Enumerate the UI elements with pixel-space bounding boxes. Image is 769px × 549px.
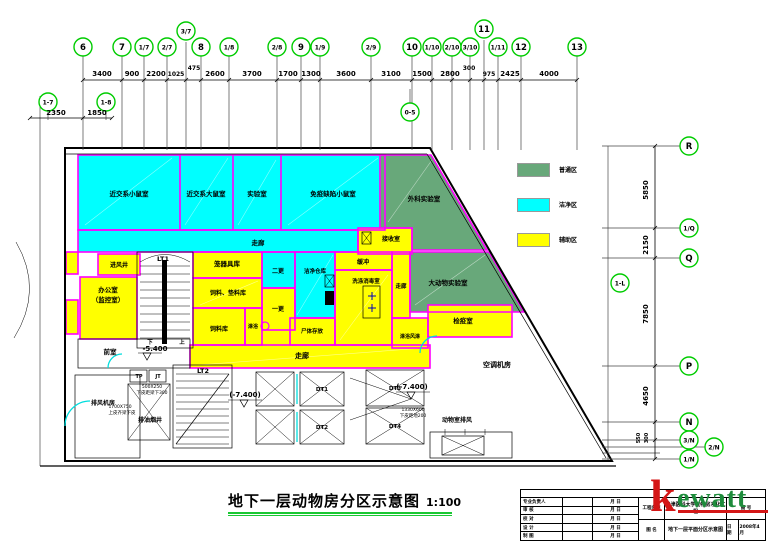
- logo-letters-ewatt: ewatt: [677, 485, 747, 513]
- logo-red-bar: [678, 510, 768, 513]
- drawing-title-text: 地下一层动物房分区示意图: [228, 492, 420, 510]
- row-label: 审 核: [521, 507, 563, 515]
- room-label-lt2: LT2: [197, 367, 209, 375]
- room-label-clean-store: 洁净仓库: [304, 267, 327, 275]
- elevator-label-dt4: DT4: [389, 424, 401, 430]
- dim-label: 1700: [278, 70, 298, 78]
- title-block-row: 校 对月 日: [521, 515, 638, 524]
- room-label-ac-room: 空调机房: [483, 360, 511, 369]
- dim-label: 1850: [87, 109, 107, 117]
- legend-label: 普通区: [559, 165, 577, 174]
- annotation: 下皮距梁下300: [136, 389, 167, 396]
- dim-label: 3600: [336, 70, 356, 78]
- shaft-label-tp: TP: [135, 374, 142, 380]
- kewatt-logo: k ewatt: [650, 477, 769, 523]
- grid-bubble: 1-8: [101, 100, 112, 107]
- row-date-cell: 月 日: [593, 499, 638, 505]
- grid-bubbles-right: R 1/Q Q P N 3/N 2/N 1/N 1-L 5850 2150 78…: [602, 137, 723, 468]
- grid-bubble: 10: [406, 43, 418, 53]
- row-date-cell: 月 日: [593, 525, 638, 531]
- room-label-immuno: 免疫缺陷小鼠室: [310, 189, 356, 198]
- stair-lt1: [137, 252, 193, 348]
- grid-bubble: 2/N: [708, 445, 719, 452]
- title-block-row: 设 计月 日: [521, 524, 638, 533]
- room-label-animal-exhaust: 动物室排风: [442, 416, 472, 424]
- grid-bubble: R: [686, 142, 693, 152]
- row-name-cell: [563, 524, 593, 532]
- room-label-air-inlet: 进风井: [110, 261, 128, 269]
- grid-bubble: N: [685, 418, 692, 428]
- row-date-cell: 月 日: [593, 507, 638, 513]
- grid-bubble: 11: [478, 25, 490, 35]
- grid-bubble: 1/7: [139, 45, 150, 52]
- grid-bubble: 2/7: [162, 45, 173, 52]
- room-label-rat-inbred: 近交系大鼠室: [187, 189, 227, 198]
- room-label-corridor: 走廊: [394, 282, 407, 290]
- grid-bubble: 0-5: [405, 110, 416, 117]
- dim-label: 1300: [301, 70, 321, 78]
- grid-bubble: 1/N: [683, 457, 694, 464]
- grid-bubble: P: [686, 362, 692, 372]
- dim-label: 2800: [440, 70, 460, 78]
- legend-item: 洁净区: [517, 198, 577, 211]
- elevator-label-dt2: DT2: [316, 425, 328, 431]
- grid-bubbles-top: 6 7 1/7 2/7 3/7 8 1/8 2/8 9 1/9 2/9 10 1…: [74, 20, 586, 150]
- room-label-office2: （监控室）: [92, 295, 125, 304]
- room-label-ante: 前室: [104, 347, 118, 356]
- row-name-cell: [563, 507, 593, 515]
- room-label-bedding-store: 饲料、垫料库: [209, 289, 246, 297]
- room-label-shower-air: 淋浴风淋: [400, 333, 420, 340]
- annotation: 1700X750: [108, 404, 131, 410]
- grid-bubble: 12: [515, 43, 527, 53]
- legend-label: 洁净区: [559, 200, 577, 209]
- floor-plan: 6 7 1/7 2/7 3/7 8 1/8 2/8 9 1/9 2/9 10 1…: [0, 0, 769, 549]
- cad-drawing-canvas: 6 7 1/7 2/7 3/7 8 1/8 2/8 9 1/9 2/9 10 1…: [0, 0, 769, 549]
- dim-label: 300: [644, 432, 650, 443]
- annotation: 1330X600: [401, 407, 424, 413]
- dim-label: 2350: [46, 109, 66, 117]
- stair-lt2: [173, 365, 232, 448]
- dim-label: 2600: [205, 70, 225, 78]
- stair-up-label: 上: [179, 338, 185, 346]
- stair-down-label: 下: [147, 339, 153, 346]
- room-label-lt1: LT1: [157, 255, 169, 263]
- grid-bubble: 13: [571, 43, 583, 53]
- grid-bubble: 7: [119, 43, 125, 53]
- dim-label: 2150: [642, 235, 650, 255]
- date-label: 日 期: [727, 524, 738, 536]
- title-block-row: 审 核月 日: [521, 507, 638, 516]
- elevator-bank: [256, 370, 424, 444]
- dim-label: 300: [463, 65, 476, 72]
- row-date-cell: 月 日: [593, 533, 638, 539]
- dim-label: 475: [188, 65, 201, 72]
- dim-label: 2200: [146, 70, 166, 78]
- room-label-wash: 洗涤消毒室: [352, 277, 380, 285]
- row-name-cell: [563, 498, 593, 506]
- dim-label: 2425: [500, 70, 520, 78]
- elevator-label-dt1: DT1: [316, 387, 328, 393]
- dim-label: 4000: [539, 70, 559, 78]
- room-label-corpse: 尸体存放: [301, 327, 324, 335]
- dim-label: 3400: [92, 70, 112, 78]
- row-name-cell: [563, 532, 593, 540]
- legend-swatch-aux-zone: [517, 233, 550, 247]
- legend-swatch-normal-zone: [517, 163, 550, 177]
- grid-bubble: 9: [298, 43, 304, 53]
- grid-bubble: 2/9: [366, 45, 377, 52]
- room-label-cage-store: 笼器具库: [213, 259, 241, 268]
- grid-bubble: 8: [198, 43, 204, 53]
- tiny-annotations: 500X250 下皮距梁下300 1700X750 上皮齐梁下皮 1330X60…: [108, 384, 426, 419]
- grid-bubble: 2/10: [445, 45, 460, 52]
- grid-bubble: 1/Q: [683, 226, 694, 233]
- legend: 普通区 洁净区 辅助区: [517, 163, 577, 268]
- dimension-line-top: 3400 900 2200 1025 475 2600 3700 1700 13…: [81, 65, 579, 82]
- dim-label: 1025: [168, 71, 185, 78]
- elevation-label: (-7.400): [229, 391, 260, 399]
- grid-bubble: 1/11: [491, 45, 506, 52]
- room-label-change1: 一更: [272, 305, 285, 313]
- annotation: 500X250: [142, 384, 162, 390]
- grid-bubble: 3/10: [463, 45, 478, 52]
- drawing-title: 地下一层动物房分区示意图1:100: [228, 490, 461, 516]
- legend-swatch-clean-zone: [517, 198, 550, 212]
- title-block-row: 专业负责人月 日: [521, 498, 638, 507]
- dim-label: 7850: [642, 304, 650, 324]
- dim-label: 975: [483, 71, 496, 78]
- dim-label: 1500: [412, 70, 432, 78]
- room-label-corridor: 走廊: [295, 351, 309, 360]
- annotation: 下皮距地200: [400, 412, 427, 419]
- room-label-quarantine: 检疫室: [453, 316, 473, 325]
- elevator-label-dt3: DT3: [389, 386, 401, 392]
- title-block-row: 制 图月 日: [521, 532, 638, 540]
- room-label-office: 办公室: [98, 285, 118, 294]
- room-label-big-animal: 大动物实验室: [429, 278, 469, 287]
- grid-bubble: 3/N: [683, 438, 694, 445]
- room-label-surgery: 外科实验室: [408, 194, 441, 203]
- grid-bubble: 1/8: [224, 45, 235, 52]
- drawing-scale: 1:100: [426, 496, 461, 509]
- room-label-buffer: 缓冲: [357, 258, 369, 266]
- legend-label: 辅助区: [559, 235, 577, 244]
- dim-label: 3700: [242, 70, 262, 78]
- elevation-label: -5.400: [142, 345, 167, 353]
- dim-label: 900: [125, 70, 140, 78]
- title-underline: [228, 512, 452, 516]
- dim-label: 3100: [381, 70, 401, 78]
- room-label-corridor: 走廊: [251, 238, 266, 247]
- room-label-shower: 淋浴: [248, 323, 259, 330]
- row-name-cell: [563, 515, 593, 523]
- grid-bubble: 2/8: [272, 45, 283, 52]
- grid-bubble: 1-L: [615, 281, 626, 288]
- legend-item: 辅助区: [517, 233, 577, 246]
- title-block-signatures: 专业负责人月 日 审 核月 日 校 对月 日 设 计月 日 制 图月 日: [521, 498, 639, 540]
- grid-bubble: Q: [685, 254, 692, 264]
- grid-bubble: 1/10: [425, 45, 440, 52]
- legend-item: 普通区: [517, 163, 577, 176]
- shaft-label-jt: JT: [154, 374, 161, 380]
- row-label: 校 对: [521, 515, 563, 523]
- room-label-oil-shaft: 排油烟井: [138, 416, 162, 424]
- dim-label: 5850: [642, 180, 650, 200]
- grid-bubbles-left: 1-7 1-8 2350 1850 0-5: [28, 89, 419, 121]
- room-label-lab: 实验室: [247, 189, 267, 198]
- room-label-mouse-inbred: 近交系小鼠室: [110, 189, 150, 198]
- room-label-feed-store: 饲料库: [209, 325, 228, 333]
- exhaust-duct: [430, 429, 512, 458]
- row-label: 专业负责人: [521, 498, 563, 506]
- room-label-receive: 接收室: [381, 235, 400, 243]
- grid-bubble: 1/9: [315, 45, 326, 52]
- grid-bubble: 3/7: [181, 29, 192, 36]
- drawing-name: 地下一层平面分区示意图: [665, 526, 726, 533]
- grid-bubble: 6: [80, 43, 86, 53]
- row-date-cell: 月 日: [593, 516, 638, 522]
- row-label: 设 计: [521, 524, 563, 532]
- logo-letter-k: k: [650, 473, 676, 519]
- annotation: 上皮齐梁下皮: [109, 409, 136, 416]
- grid-bubble: 1-7: [43, 100, 54, 107]
- dim-label: 4650: [642, 386, 650, 406]
- dim-label: 550: [636, 432, 642, 443]
- row-label: 制 图: [521, 532, 563, 540]
- room-label-change2: 二更: [272, 267, 285, 275]
